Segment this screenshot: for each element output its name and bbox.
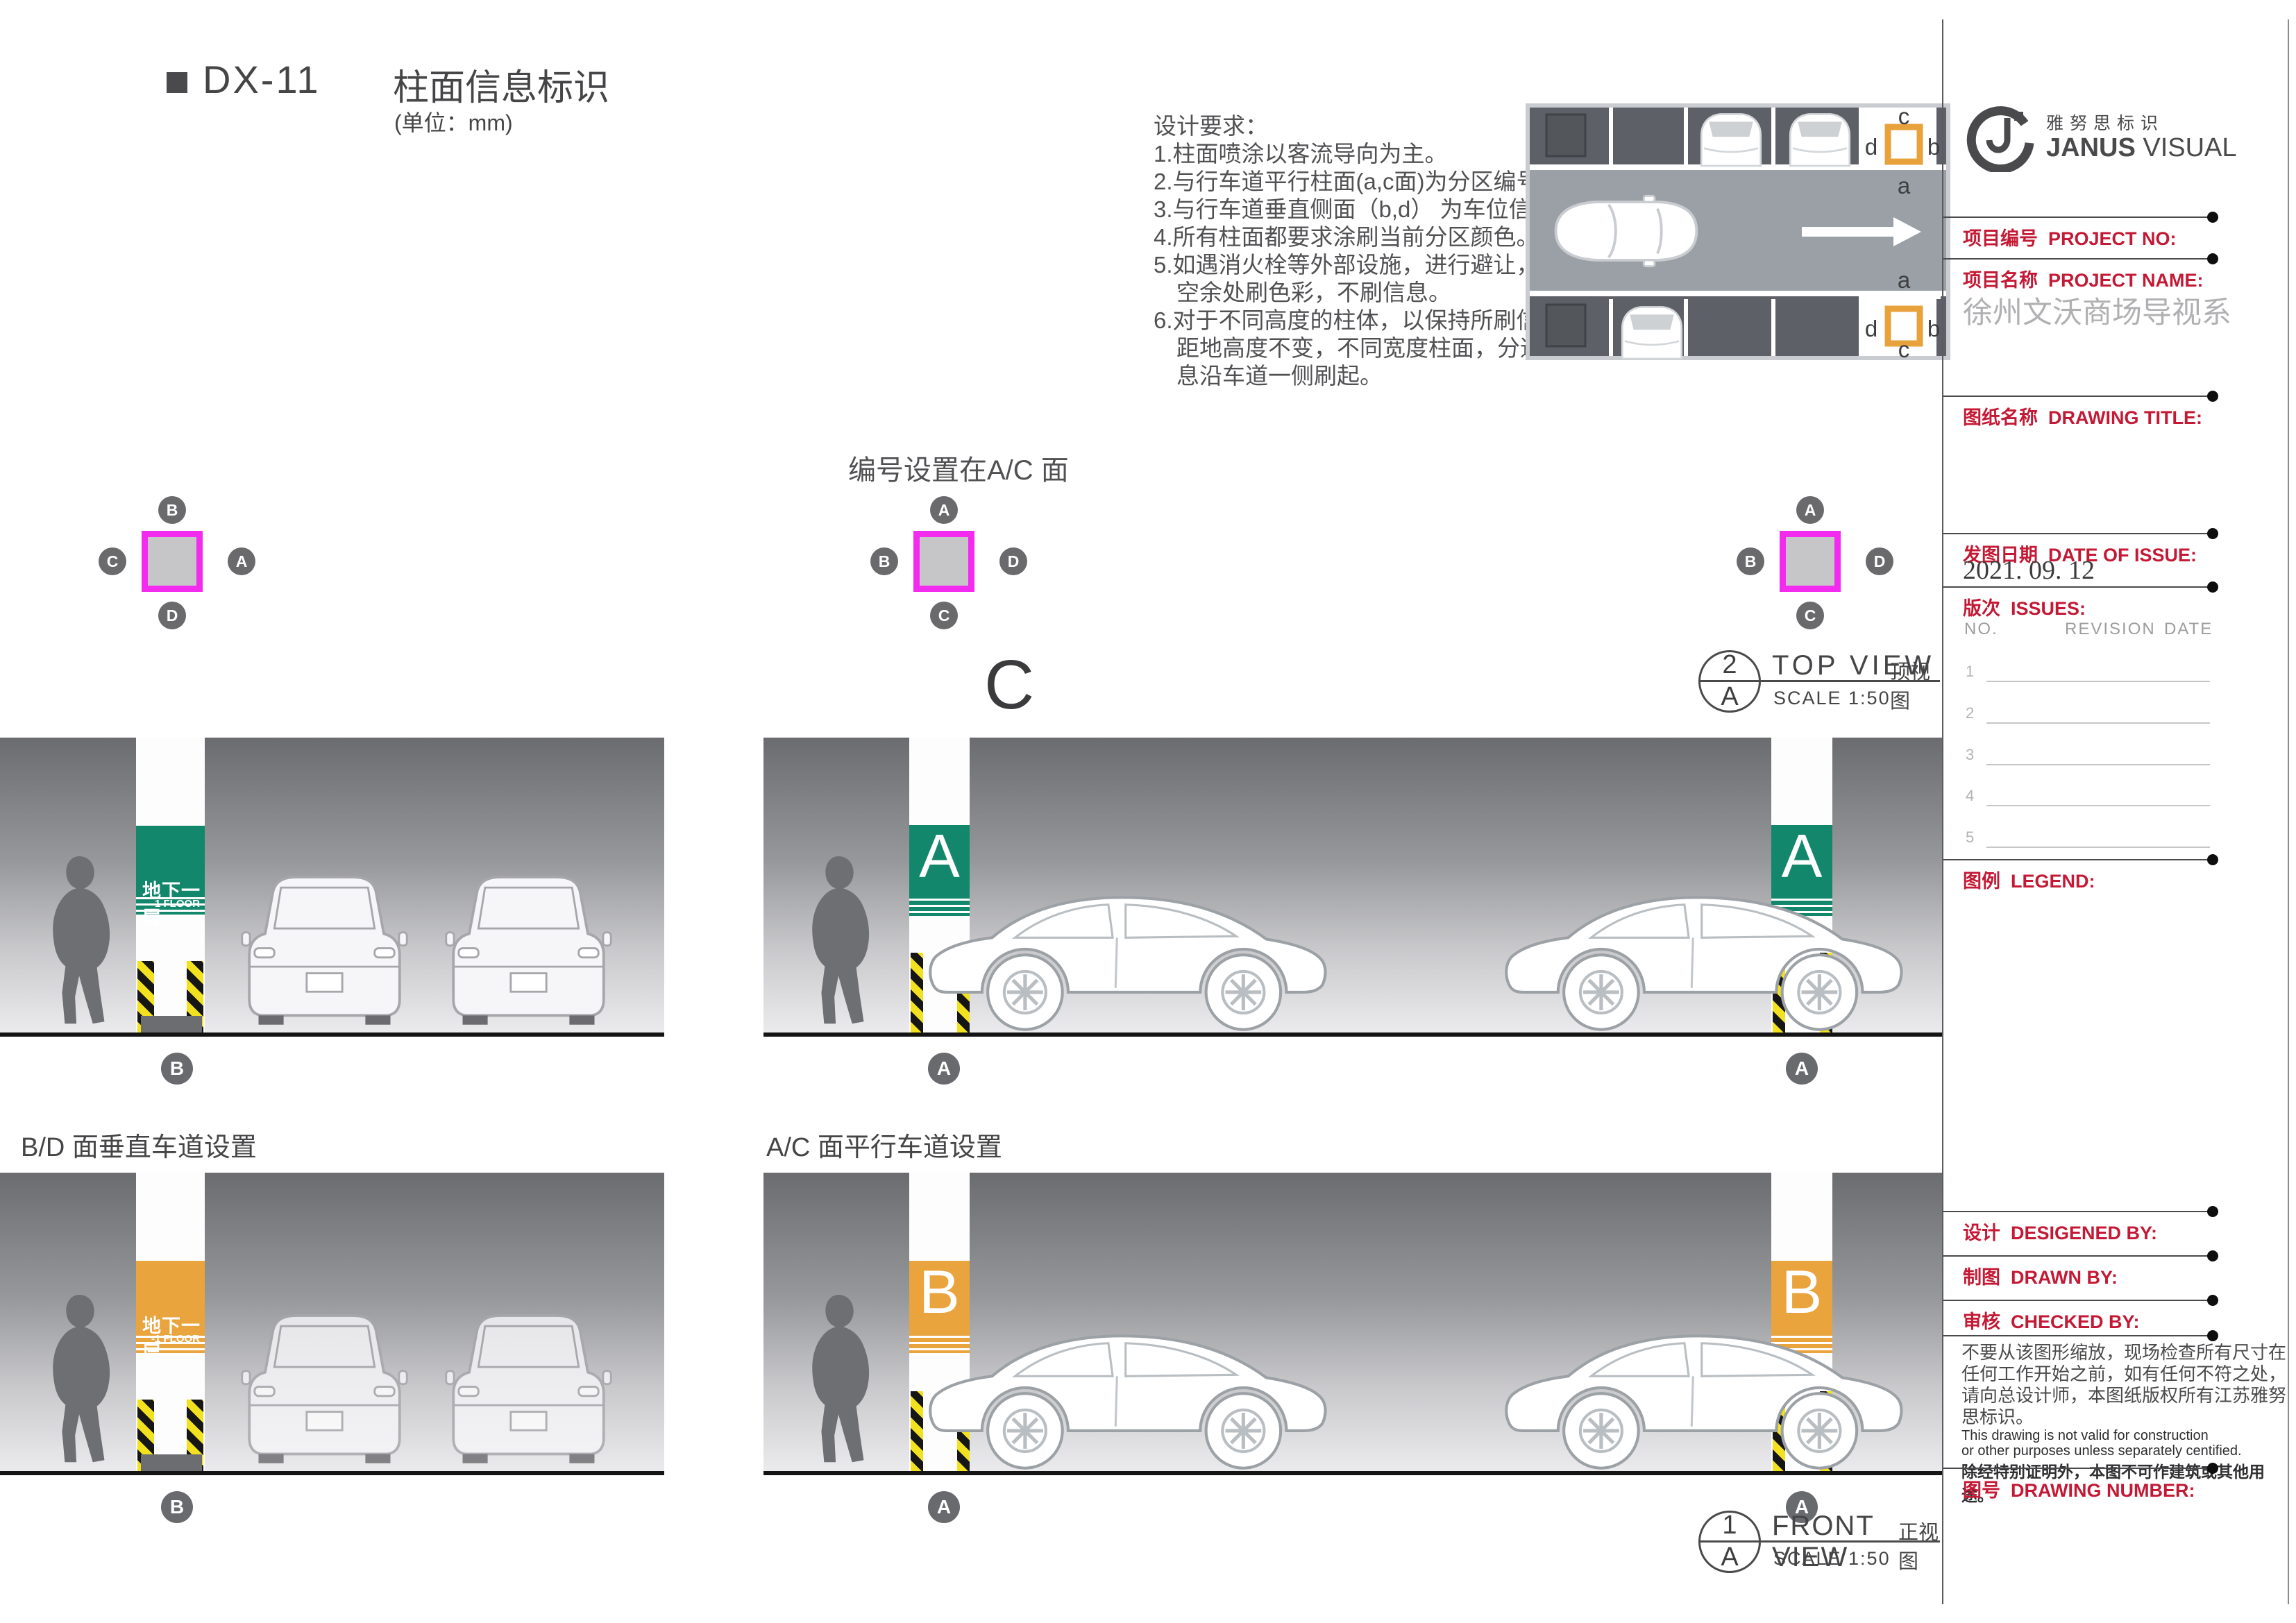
car-side-view [1499, 869, 1916, 1034]
sign-column-top [1888, 127, 1920, 162]
date-of-issue-value: 2021. 09. 12 [1963, 555, 2095, 586]
rule-end-dot [2207, 1330, 2218, 1341]
rule-end-dot [2207, 854, 2218, 865]
face-label: a [1898, 267, 1911, 293]
face-marker-b: B [161, 1491, 193, 1523]
rev-row-num: 2 [1966, 704, 1974, 722]
face-marker-b: B [161, 1053, 193, 1085]
rev-col-date: DATE [2164, 620, 2213, 639]
hazard-stripe [911, 1391, 923, 1471]
car-rear-view [239, 863, 410, 1034]
rule-end-dot [2207, 1250, 2218, 1261]
hazard-stripe [911, 953, 923, 1033]
top-view-tag: 2 A TOP VIEW 顶视图 SCALE 1:50 [1698, 650, 1941, 726]
face-marker: B [870, 547, 898, 575]
car-side-view [1499, 1307, 1916, 1472]
section-label-ac: A/C 面平行车道设置 [766, 1125, 1002, 1164]
rev-row-line [1986, 681, 2210, 682]
drawing-title-label: 图纸名称 DRAWING TITLE: [1963, 402, 2202, 430]
ground-line [0, 1471, 664, 1475]
issues-label: 版次 ISSUES: [1963, 593, 2086, 620]
page-title: 柱面信息标识 [393, 58, 609, 110]
axis-caption: 编号设置在A/C 面 [848, 448, 1069, 488]
view-number: 1 [1698, 1511, 1761, 1540]
rev-row-num: 1 [1966, 663, 1974, 681]
drawing-number-label: 图号 DRAWING NUMBER: [1963, 1475, 2195, 1502]
driving-car-top-view [1556, 196, 1697, 266]
rule-end-dot [2207, 1463, 2218, 1474]
titleblock-rule [1943, 859, 2214, 860]
rev-row-line [1986, 722, 2210, 724]
face-marker: B [1737, 547, 1764, 575]
face-marker: C [1796, 602, 1824, 629]
face-label: d [1865, 134, 1877, 160]
face-label: a [1898, 173, 1911, 198]
titleblock-rule [1943, 1255, 2214, 1257]
unit-note: (单位：mm) [394, 105, 513, 137]
titleblock-rule [1943, 1335, 2214, 1336]
face-marker-a: A [928, 1053, 960, 1085]
note-line: 5.如遇消火栓等外部设施，进行避让，在 [1154, 251, 1578, 279]
column-plan-square [913, 531, 974, 592]
note-line: 4.所有柱面都要求涂刷当前分区颜色。 [1154, 223, 1578, 251]
zone-letter-c: C [984, 645, 1034, 725]
rule-end-dot [2207, 581, 2218, 593]
brand-name-en: JANUS VISUAL [2046, 133, 2237, 163]
disclaimer-line: 不要从该图形缩放，现场检查所有尺寸在 [1961, 1342, 2296, 1363]
design-requirements: 设计要求： 1.柱面喷涂以客流导向为主。 2.与行车道平行柱面(a,c面)为分区… [1154, 112, 1578, 390]
note-line: 息沿车道一侧刷起。 [1154, 362, 1578, 390]
titleblock-rule [1943, 1211, 2214, 1212]
rule-end-dot [2207, 1206, 2218, 1217]
titleblock-rule [1943, 533, 2214, 534]
view-ref-letter: A [1698, 1543, 1761, 1572]
car-side-view [923, 1307, 1340, 1472]
face-marker: A [930, 496, 958, 524]
person-silhouette [36, 855, 125, 1033]
face-label: b [1927, 316, 1940, 341]
rule-end-dot [2207, 391, 2218, 402]
parked-car-front [1701, 114, 1760, 166]
disclaimer-line: 任何工作开始之前，如有任何不符之处， [1961, 1363, 2296, 1385]
titleblock-rule [1943, 396, 2214, 397]
ground-line [763, 1471, 1942, 1475]
rev-row-line [1986, 847, 2210, 848]
note-line: 3.与行车道垂直侧面（b,d） 为车位信息。 [1154, 196, 1578, 223]
notes-title: 设计要求： [1154, 112, 1578, 140]
disclaimer-line-en: This drawing is not valid for constructi… [1961, 1428, 2296, 1443]
person-silhouette [795, 855, 884, 1033]
drawing-sheet: DX-11 柱面信息标识 (单位：mm) 设计要求： 1.柱面喷涂以客流导向为主… [0, 0, 2296, 1623]
note-line: 6.对于不同高度的柱体，以保持所刷信息 [1154, 307, 1578, 334]
person-silhouette [795, 1293, 884, 1471]
view-number: 2 [1698, 650, 1761, 680]
brand-name-cn: 雅努思标识 [2046, 110, 2164, 135]
rev-row-line [1986, 805, 2210, 806]
face-label: d [1865, 316, 1877, 341]
column-base [141, 1016, 202, 1033]
face-marker: C [99, 547, 126, 575]
rule-end-dot [2207, 212, 2218, 223]
brand-en-bold: JANUS [2046, 133, 2136, 162]
car-rear-view [443, 863, 614, 1034]
note-line: 2.与行车道平行柱面(a,c面)为分区编号 [1154, 168, 1578, 196]
face-marker: D [1866, 547, 1893, 575]
rev-row-num: 3 [1966, 746, 1974, 764]
disclaimer-line: 思标识。 [1961, 1407, 2296, 1428]
face-marker: C [930, 602, 958, 629]
titleblock-rule [1943, 1300, 2214, 1301]
face-marker: A [1796, 496, 1824, 524]
designed-by-label: 设计 DESIGENED BY: [1963, 1218, 2157, 1245]
section-label-bd: B/D 面垂直车道设置 [21, 1125, 257, 1164]
titleblock-rule [1943, 586, 2214, 588]
project-no-label: 项目编号 PROJECT NO: [1963, 223, 2177, 250]
view-scale: SCALE 1:50 [1773, 1548, 1891, 1570]
project-name-value: 徐州文沃商场导视系 [1963, 289, 2231, 332]
front-view-tag: 1 A FRONT VIEW 正视图 SCALE 1:50 [1698, 1511, 1941, 1587]
ground-line [763, 1033, 1942, 1037]
floor-sign-green: 地下一层 -1 FLOOR [136, 826, 205, 915]
view-title-cn: 正视图 [1898, 1516, 1941, 1574]
face-label: c [1898, 103, 1910, 129]
checked-by-label: 审核 CHECKED BY: [1963, 1307, 2140, 1334]
parking-plan-diagram: c d b a a d b c [1526, 103, 1950, 360]
brand-en-rest: VISUAL [2136, 133, 2237, 162]
car-rear-view [239, 1302, 410, 1472]
titleblock-rule [1943, 258, 2214, 260]
janus-logo-icon [1966, 103, 2035, 172]
parked-car-front [1622, 307, 1681, 359]
sign-stripes [136, 1336, 205, 1350]
face-marker: D [999, 547, 1027, 575]
titleblock-rule [1943, 216, 2214, 218]
titleblock-divider [1942, 19, 1943, 1604]
face-label: b [1927, 134, 1940, 160]
face-marker: D [158, 602, 186, 629]
titleblock-rule [1943, 1468, 2214, 1469]
view-ref-letter: A [1698, 682, 1761, 712]
column-plan-square [142, 531, 203, 592]
face-marker-a: A [928, 1491, 960, 1523]
rev-row-num: 4 [1966, 787, 1974, 805]
note-line: 空余处刷色彩，不刷信息。 [1154, 279, 1578, 307]
note-line: 距地高度不变，不同宽度柱面，分道信 [1154, 334, 1578, 362]
rev-col-revision: REVISION [2065, 620, 2156, 639]
rule-end-dot [2207, 253, 2218, 264]
person-silhouette [36, 1293, 125, 1471]
rev-row-num: 5 [1966, 829, 1974, 847]
drawn-by-label: 制图 DRAWN BY: [1963, 1262, 2118, 1289]
car-side-view [923, 869, 1340, 1034]
car-rear-view [443, 1302, 614, 1472]
rule-end-dot [2207, 1295, 2218, 1306]
header-bullet-square [167, 72, 187, 93]
rev-row-line [1986, 764, 2210, 765]
face-marker: A [228, 547, 255, 575]
rev-col-no: NO. [1964, 620, 1998, 639]
parked-car-front [1790, 114, 1849, 166]
column-base [141, 1454, 202, 1471]
disclaimer-line: 请向总设计师，本图纸版权所有江苏雅努 [1961, 1385, 2296, 1407]
face-marker-a: A [1786, 1053, 1818, 1085]
face-marker: B [158, 496, 186, 524]
legend-label: 图例 LEGEND: [1963, 866, 2095, 893]
sign-stripes [136, 897, 205, 912]
column-plan-square [1780, 531, 1841, 592]
disclaimer-line-en: or other purposes unless separately cent… [1961, 1443, 2296, 1459]
view-title-cn: 顶视图 [1890, 656, 1941, 714]
floor-sign-orange: 地下一层 -1 FLOOR [136, 1261, 205, 1353]
view-scale: SCALE 1:50 [1773, 688, 1891, 709]
rule-end-dot [2207, 528, 2218, 539]
sign-code: DX-11 [203, 57, 321, 102]
ground-line [0, 1033, 664, 1037]
note-line: 1.柱面喷涂以客流导向为主。 [1154, 140, 1578, 168]
face-label: c [1898, 337, 1910, 360]
